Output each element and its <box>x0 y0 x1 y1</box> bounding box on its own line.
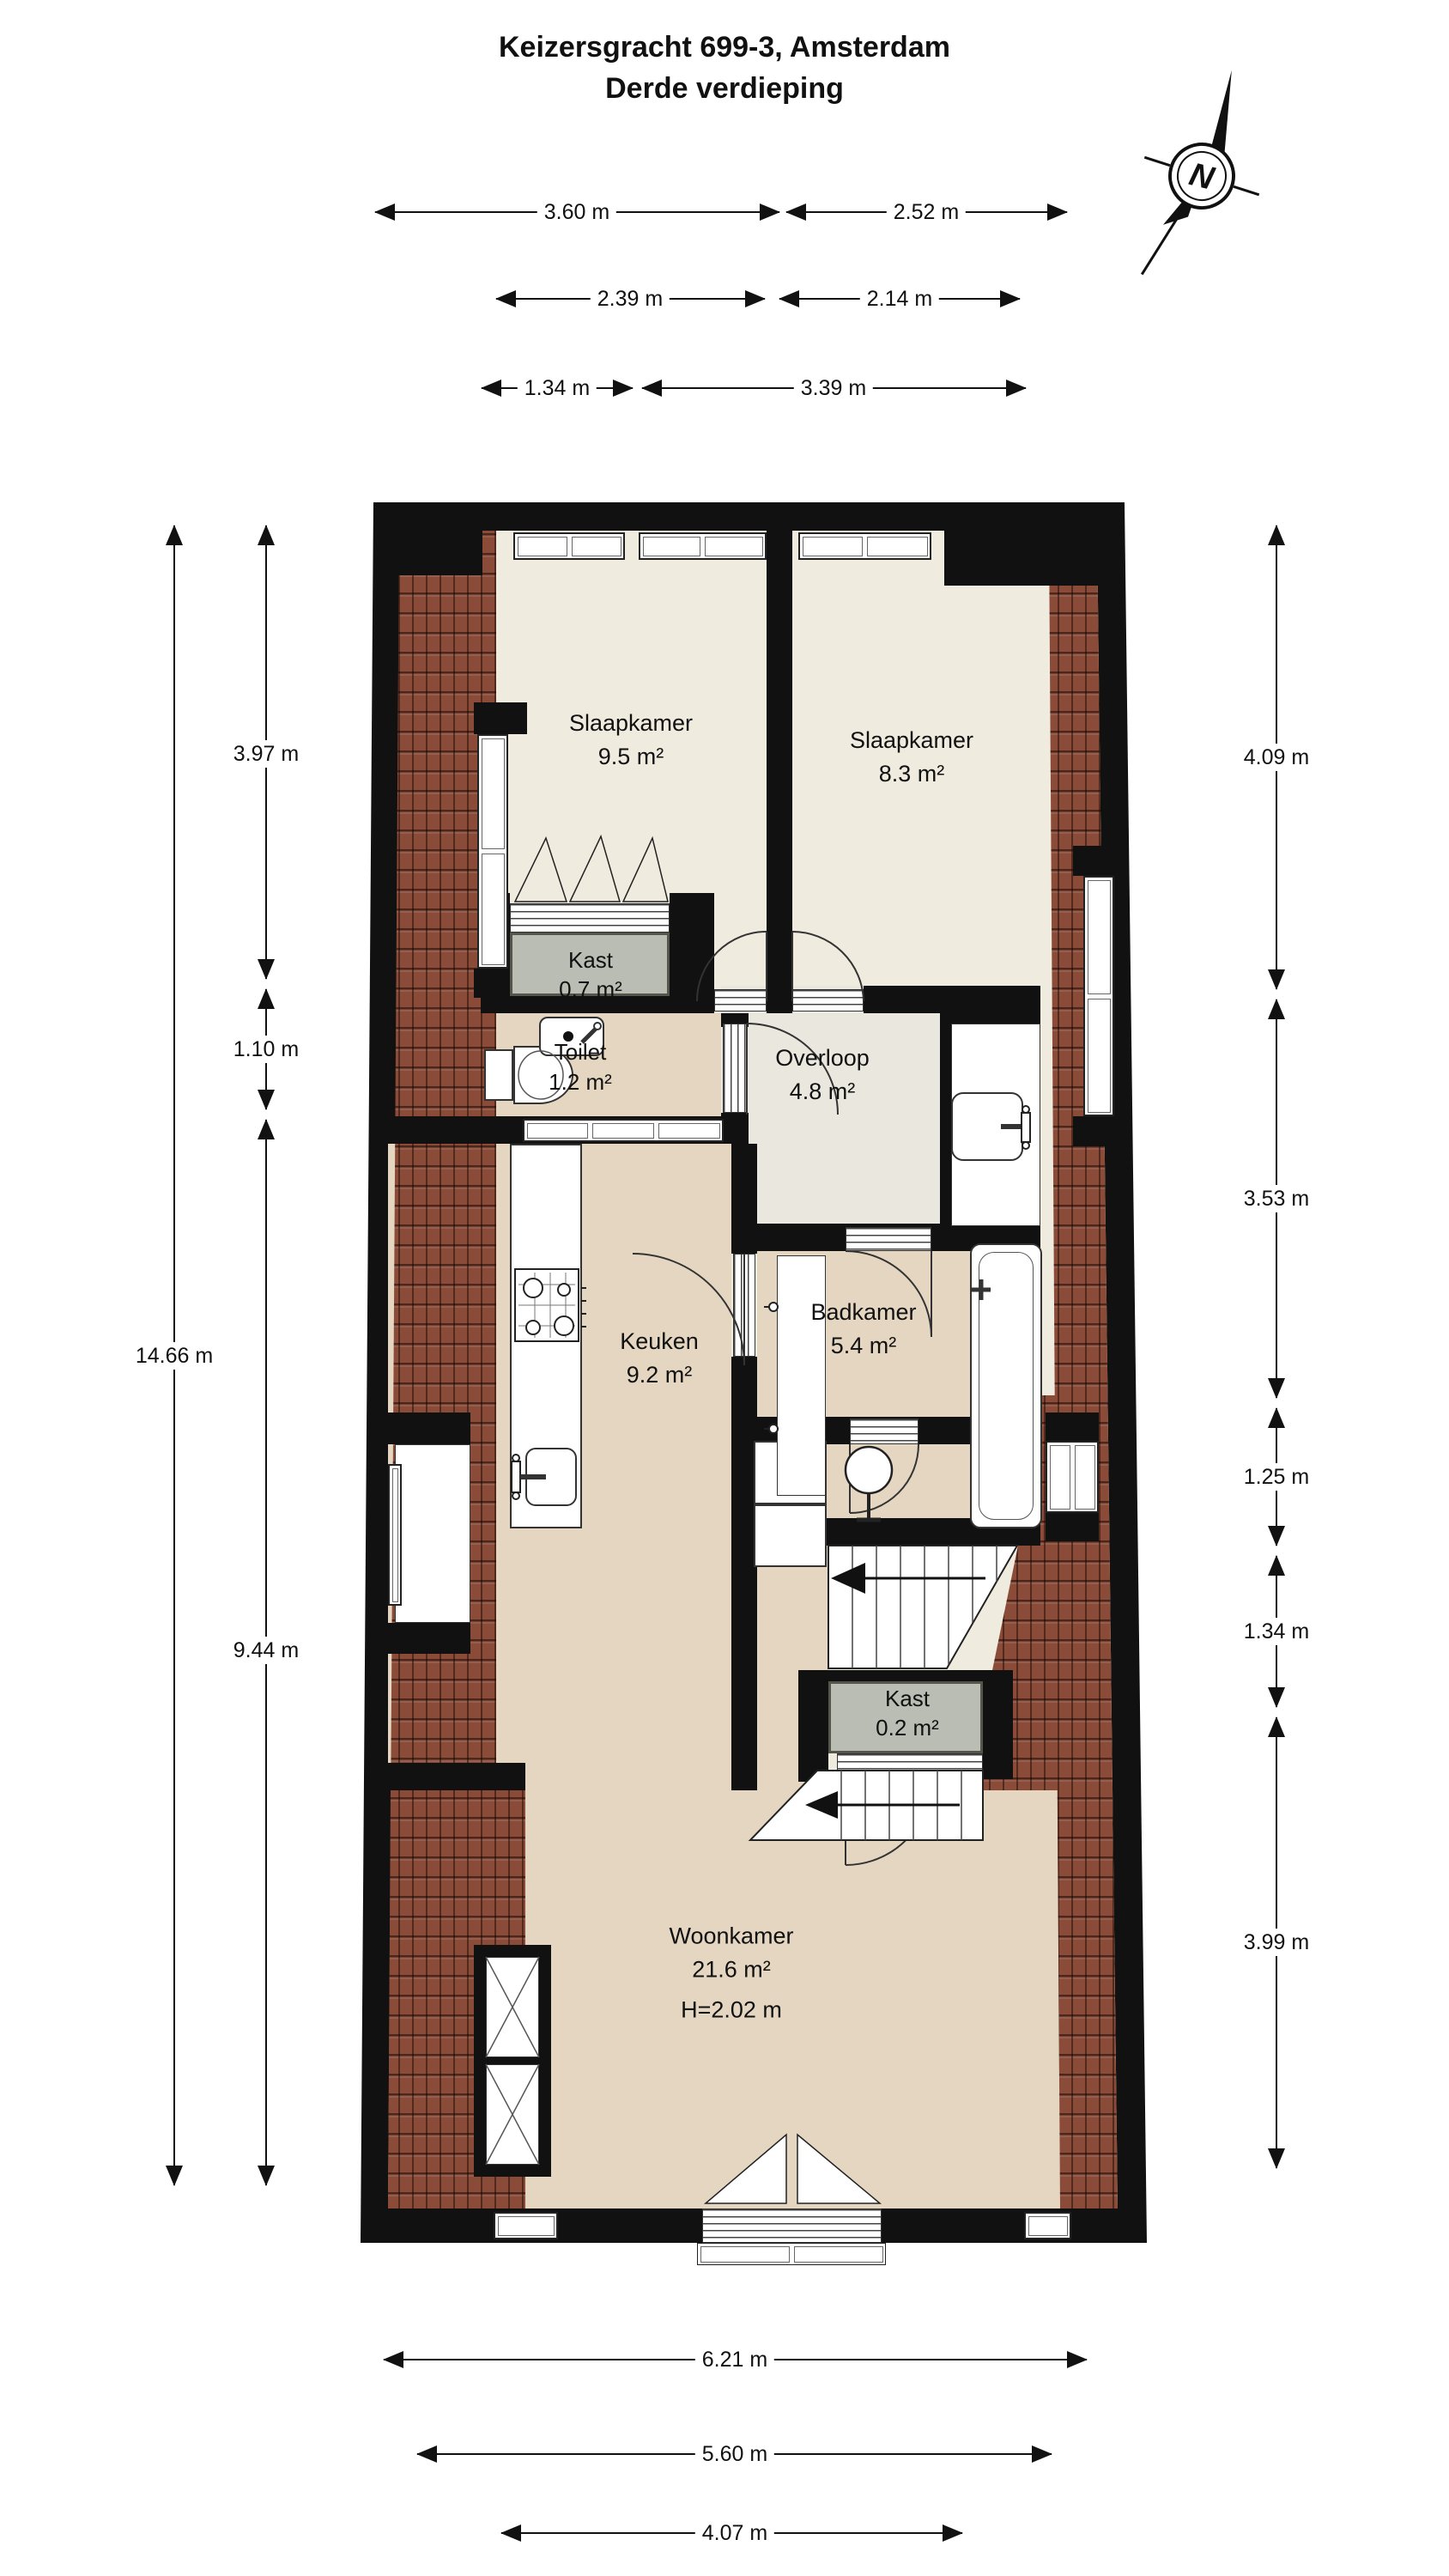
dim-bottom-560: 5.60 m <box>695 2440 774 2468</box>
dim-value: 9.44 m <box>233 1638 299 1662</box>
room-area: 9.5 m² <box>569 740 693 774</box>
staircase-upper <box>828 1546 1017 1668</box>
dim-left-397: 3.97 m <box>227 740 306 768</box>
dim-value: 2.39 m <box>597 287 663 311</box>
bathtub-tap-icon <box>972 1279 991 1300</box>
room-name: Overloop <box>775 1042 870 1075</box>
room-name: Woonkamer <box>669 1919 793 1953</box>
washbasin-tap-icon <box>1001 1106 1030 1149</box>
dim-right-399: 3.99 m <box>1237 1929 1316 1956</box>
folding-door-icon <box>515 836 668 902</box>
room-label-slaapkamer1: Slaapkamer 9.5 m² <box>569 707 693 774</box>
dim-value: 4.09 m <box>1244 745 1309 769</box>
room-name: Keuken <box>620 1325 699 1358</box>
room-area: 9.2 m² <box>620 1358 699 1392</box>
room-label-badkamer: Badkamer 5.4 m² <box>810 1296 916 1363</box>
dormer-x-glazing <box>486 1957 539 2165</box>
room-label-slaapkamer2: Slaapkamer 8.3 m² <box>850 724 973 791</box>
dimension-lines <box>174 212 1276 2533</box>
floor-lamp-icon <box>846 1447 892 1520</box>
room-area: 21.6 m² <box>669 1953 793 1986</box>
dim-value: 3.97 m <box>233 742 299 766</box>
room-name: Kast <box>876 1685 939 1714</box>
room-name: Kast <box>559 946 622 975</box>
dim-left-944: 9.44 m <box>227 1637 306 1664</box>
plan-vector-overlay: N <box>0 0 1449 2576</box>
dim-value: 2.52 m <box>894 200 959 224</box>
dim-top-1a: 3.60 m <box>537 198 616 226</box>
dim-top-3b: 3.39 m <box>794 374 873 402</box>
dim-bottom-621: 6.21 m <box>695 2346 774 2373</box>
room-name: Slaapkamer <box>569 707 693 740</box>
dim-right-353: 3.53 m <box>1237 1185 1316 1212</box>
dim-value: 3.53 m <box>1244 1187 1309 1211</box>
gas-hob-icon <box>515 1269 586 1341</box>
room-name: Slaapkamer <box>850 724 973 757</box>
room-area: 8.3 m² <box>850 757 973 791</box>
dim-value: 1.25 m <box>1244 1465 1309 1489</box>
dim-top-2a: 2.39 m <box>591 285 670 313</box>
dim-value: 3.99 m <box>1244 1930 1309 1954</box>
dim-value: 6.21 m <box>702 2348 767 2372</box>
room-label-kast1: Kast 0.7 m² <box>559 946 622 1005</box>
dim-right-409: 4.09 m <box>1237 744 1316 771</box>
shower-knobs-icon <box>764 1303 778 1433</box>
dim-value: 1.10 m <box>233 1037 299 1061</box>
balcony-door-leaves <box>706 2135 880 2203</box>
room-label-woonkamer: Woonkamer 21.6 m² H=2.02 m <box>669 1919 793 2026</box>
kitchen-tap-icon <box>512 1455 546 1499</box>
dim-value: 3.39 m <box>801 376 866 400</box>
dim-value: 5.60 m <box>702 2442 767 2466</box>
dim-value: 1.34 m <box>1244 1619 1309 1643</box>
room-area: 1.2 m² <box>549 1067 612 1097</box>
compass-icon: N <box>1117 55 1287 297</box>
room-label-toilet: Toilet 1.2 m² <box>549 1037 612 1097</box>
dim-right-125: 1.25 m <box>1237 1463 1316 1491</box>
room-area: 4.8 m² <box>775 1075 870 1109</box>
room-name: Badkamer <box>810 1296 916 1329</box>
room-name: Toilet <box>549 1037 612 1067</box>
dim-bottom-407: 4.07 m <box>695 2519 774 2547</box>
dim-value: 3.60 m <box>544 200 609 224</box>
dim-top-1b: 2.52 m <box>887 198 966 226</box>
room-area: 0.7 m² <box>559 975 622 1005</box>
dim-top-3a: 1.34 m <box>518 374 597 402</box>
dim-left-1466: 14.66 m <box>129 1342 220 1370</box>
dim-value: 1.34 m <box>524 376 590 400</box>
dim-value: 4.07 m <box>702 2521 767 2545</box>
dim-value: 14.66 m <box>136 1344 213 1368</box>
dim-right-134: 1.34 m <box>1237 1618 1316 1645</box>
staircase-lower <box>750 1771 983 1840</box>
room-height: H=2.02 m <box>669 1994 793 2027</box>
floorplan-canvas: Keizersgracht 699-3, Amsterdam Derde ver… <box>0 0 1449 2576</box>
room-label-keuken: Keuken 9.2 m² <box>620 1325 699 1392</box>
room-label-kast2: Kast 0.2 m² <box>876 1685 939 1743</box>
room-area: 0.2 m² <box>876 1714 939 1743</box>
room-area: 5.4 m² <box>810 1329 916 1363</box>
dim-top-2b: 2.14 m <box>860 285 939 313</box>
dim-value: 2.14 m <box>867 287 932 311</box>
room-label-overloop: Overloop 4.8 m² <box>775 1042 870 1109</box>
dim-left-110: 1.10 m <box>227 1036 306 1063</box>
